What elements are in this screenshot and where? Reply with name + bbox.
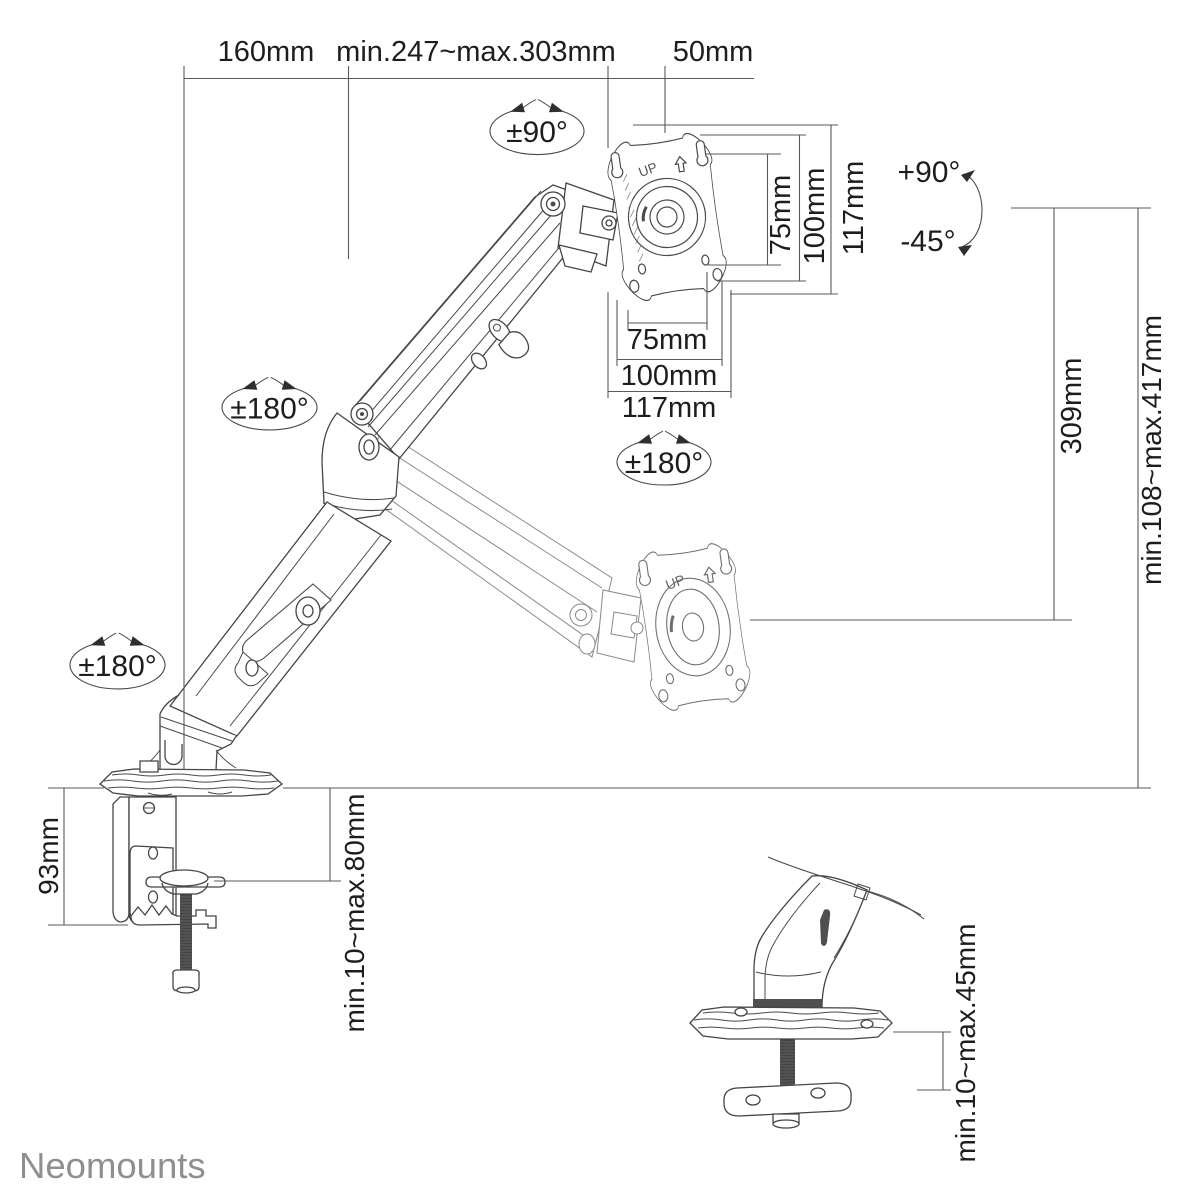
svg-text:50mm: 50mm xyxy=(673,36,754,68)
svg-text:min.10~max.45mm: min.10~max.45mm xyxy=(950,924,981,1163)
svg-text:-45°: -45° xyxy=(900,225,955,258)
svg-text:+90°: +90° xyxy=(898,156,961,189)
svg-text:309mm: 309mm xyxy=(1056,358,1088,455)
svg-text:±90°: ±90° xyxy=(506,116,568,149)
svg-text:75mm: 75mm xyxy=(627,324,708,356)
svg-text:75mm: 75mm xyxy=(765,175,797,256)
svg-text:160mm: 160mm xyxy=(218,36,315,68)
svg-text:±180°: ±180° xyxy=(78,650,157,683)
svg-text:100mm: 100mm xyxy=(799,168,831,265)
svg-text:min.247~max.303mm: min.247~max.303mm xyxy=(336,36,616,68)
svg-text:±180°: ±180° xyxy=(230,393,309,426)
svg-text:Neomounts: Neomounts xyxy=(19,1145,206,1186)
svg-text:117mm: 117mm xyxy=(622,392,717,424)
svg-text:93mm: 93mm xyxy=(33,817,64,895)
svg-text:min.10~max.80mm: min.10~max.80mm xyxy=(339,794,370,1033)
svg-text:±180°: ±180° xyxy=(625,447,704,480)
svg-text:100mm: 100mm xyxy=(621,360,718,392)
svg-text:117mm: 117mm xyxy=(838,161,870,256)
svg-text:min.108~max.417mm: min.108~max.417mm xyxy=(1136,315,1167,585)
